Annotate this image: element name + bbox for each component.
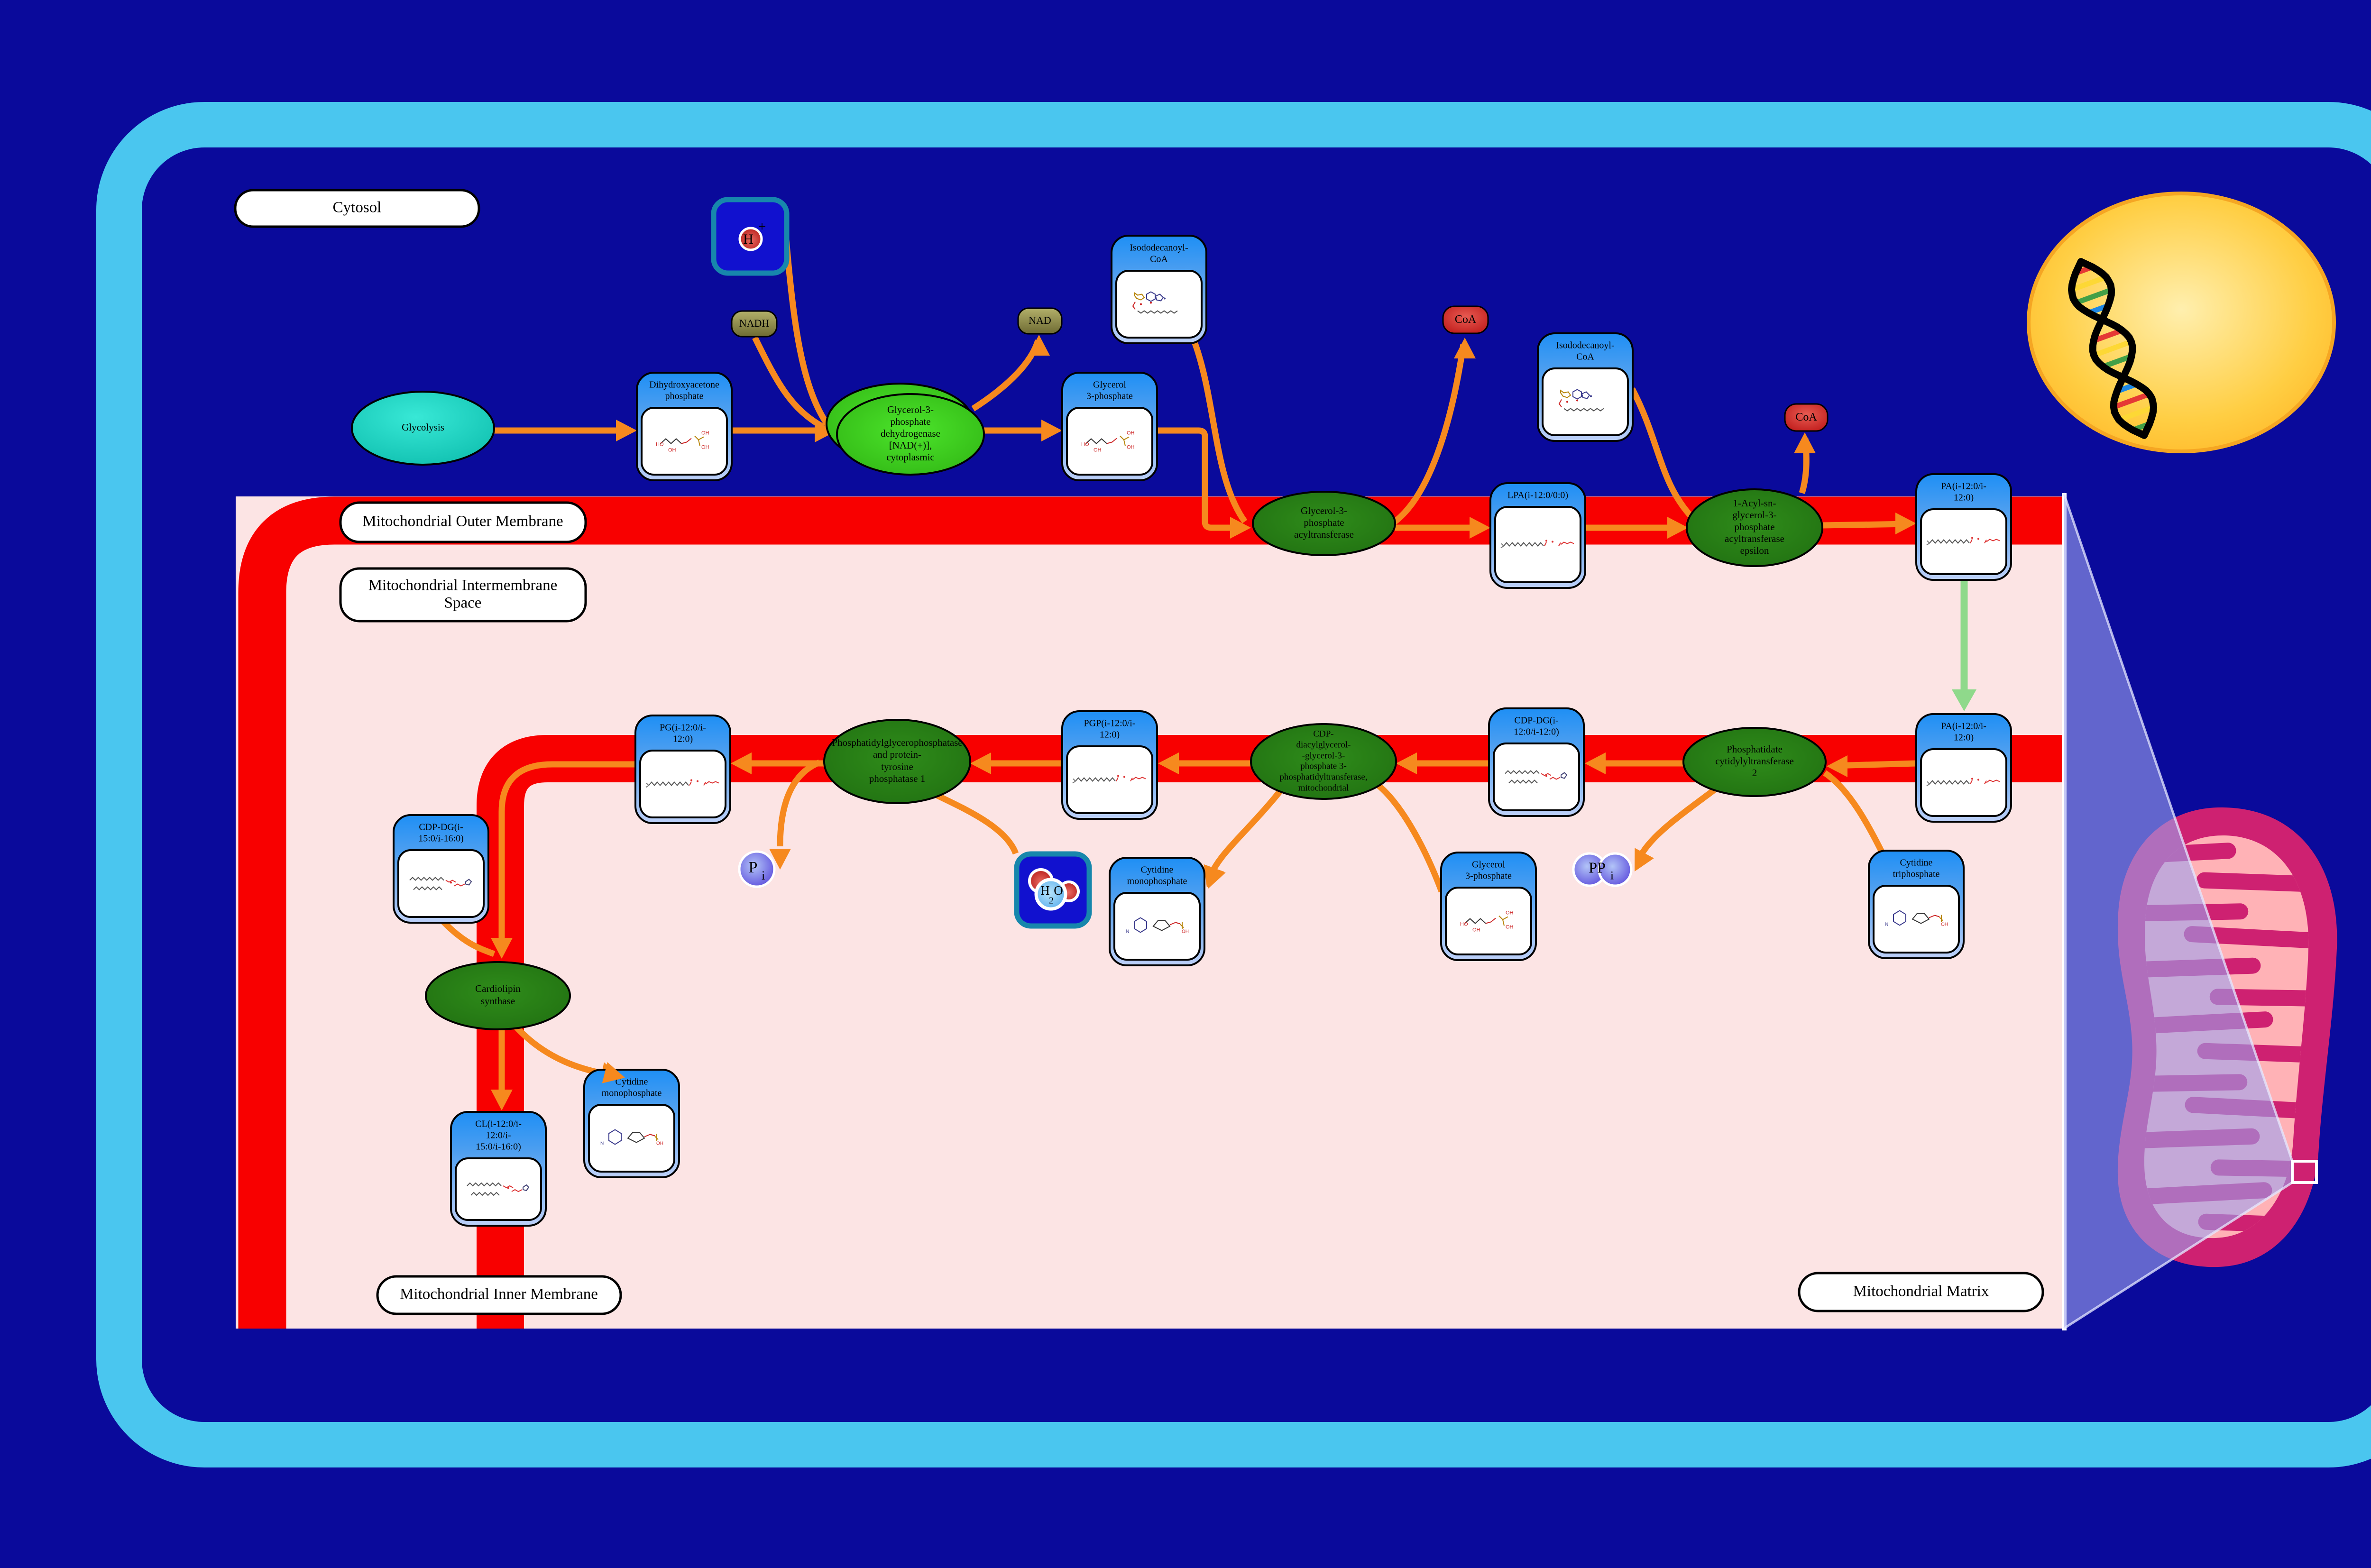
svg-text:Glycerol-3-: Glycerol-3- (1301, 505, 1347, 516)
svg-text:CoA: CoA (1455, 313, 1477, 326)
svg-text:Dihydroxyacetone: Dihydroxyacetone (649, 380, 719, 390)
svg-text:triphosphate: triphosphate (1893, 869, 1940, 880)
svg-text:mitochondrial: mitochondrial (1298, 783, 1349, 793)
svg-text:[NAD(+)],: [NAD(+)], (889, 440, 932, 451)
svg-text:Isododecanoyl-: Isododecanoyl- (1556, 340, 1614, 351)
svg-text:phosphate: phosphate (890, 416, 930, 427)
svg-text:CoA: CoA (1795, 411, 1817, 423)
svg-text:acyltransferase: acyltransferase (1725, 533, 1784, 544)
svg-text:dehydrogenase: dehydrogenase (881, 428, 940, 439)
svg-text:P: P (749, 859, 758, 876)
svg-text:CoA: CoA (1576, 352, 1594, 362)
svg-text:CDP-DG(i-: CDP-DG(i- (419, 822, 463, 833)
svg-text:2: 2 (1752, 767, 1757, 779)
svg-text:Mitochondrial Intermembrane: Mitochondrial Intermembrane (368, 577, 558, 594)
svg-text:i: i (762, 869, 765, 882)
svg-text:phosphatidyltransferase,: phosphatidyltransferase, (1279, 772, 1367, 782)
svg-text:PGP(i-12:0/i-: PGP(i-12:0/i- (1084, 718, 1136, 729)
svg-text:12:0): 12:0) (1100, 730, 1120, 740)
svg-text:15:0/i-16:0): 15:0/i-16:0) (476, 1142, 521, 1152)
svg-text:CDP-DG(i-: CDP-DG(i- (1514, 715, 1558, 726)
svg-text:2: 2 (1049, 896, 1054, 906)
svg-text:-glycerol-3-: -glycerol-3- (1302, 751, 1345, 761)
svg-text:cytoplasmic: cytoplasmic (886, 451, 934, 463)
svg-text:diacylglycerol-: diacylglycerol- (1296, 740, 1351, 750)
svg-text:Phosphatidylglycerophosphatase: Phosphatidylglycerophosphatase (832, 737, 962, 748)
svg-text:Glycerol: Glycerol (1472, 860, 1505, 870)
svg-text:phosphate: phosphate (1734, 521, 1774, 532)
svg-text:Cytidine: Cytidine (1141, 865, 1174, 875)
svg-text:acyltransferase: acyltransferase (1294, 529, 1354, 540)
svg-text:NADH: NADH (739, 317, 770, 329)
svg-text:Cardiolipin: Cardiolipin (475, 983, 521, 994)
svg-text:Glycerol-3-: Glycerol-3- (887, 404, 934, 415)
svg-text:PP: PP (1589, 859, 1606, 876)
svg-text:phosphate: phosphate (665, 391, 703, 402)
svg-text:Glycolysis: Glycolysis (402, 422, 444, 433)
svg-text:synthase: synthase (481, 995, 515, 1007)
svg-text:Isododecanoyl-: Isododecanoyl- (1130, 243, 1188, 253)
svg-text:tyrosine: tyrosine (881, 761, 913, 772)
svg-text:H: H (743, 231, 754, 247)
svg-text:CoA: CoA (1150, 254, 1168, 265)
svg-text:i: i (1610, 870, 1614, 882)
svg-text:12:0): 12:0) (1954, 493, 1974, 503)
svg-text:Space: Space (444, 595, 482, 612)
svg-text:15:0/i-16:0): 15:0/i-16:0) (418, 834, 464, 844)
svg-text:12:0): 12:0) (673, 734, 693, 744)
svg-text:O: O (1054, 883, 1063, 898)
svg-text:cytidylyltransferase: cytidylyltransferase (1715, 755, 1794, 767)
svg-text:PA(i-12:0/i-: PA(i-12:0/i- (1941, 721, 1986, 732)
svg-text:CDP-: CDP- (1313, 729, 1333, 739)
svg-text:glycerol-3-: glycerol-3- (1732, 509, 1776, 521)
svg-text:monophosphate: monophosphate (1127, 876, 1187, 887)
svg-text:Phosphatidate: Phosphatidate (1727, 743, 1783, 755)
svg-text:12:0/i-: 12:0/i- (486, 1130, 511, 1141)
svg-text:Mitochondrial Outer Membrane: Mitochondrial Outer Membrane (362, 513, 563, 530)
svg-text:Mitochondrial Matrix: Mitochondrial Matrix (1853, 1283, 1989, 1300)
svg-text:+: + (758, 219, 766, 234)
svg-text:12:0/i-12:0): 12:0/i-12:0) (1514, 727, 1559, 737)
svg-text:monophosphate: monophosphate (602, 1088, 662, 1099)
svg-text:Glycerol: Glycerol (1093, 380, 1126, 390)
svg-text:12:0): 12:0) (1954, 733, 1974, 743)
svg-text:phosphatase 1: phosphatase 1 (869, 773, 925, 784)
svg-text:LPA(i-12:0/0:0): LPA(i-12:0/0:0) (1507, 490, 1568, 501)
svg-text:and protein-: and protein- (873, 749, 921, 760)
svg-text:H: H (1040, 883, 1050, 898)
svg-text:phosphate: phosphate (1304, 517, 1344, 528)
svg-text:Cytidine: Cytidine (1900, 858, 1933, 868)
svg-text:CL(i-12:0/i-: CL(i-12:0/i- (475, 1119, 522, 1129)
svg-text:Cytosol: Cytosol (333, 199, 382, 216)
svg-text:1-Acyl-sn-: 1-Acyl-sn- (1733, 497, 1776, 509)
svg-text:Mitochondrial Inner Membrane: Mitochondrial Inner Membrane (400, 1286, 598, 1303)
svg-text:PA(i-12:0/i-: PA(i-12:0/i- (1941, 481, 1986, 492)
svg-text:PG(i-12:0/i-: PG(i-12:0/i- (660, 723, 706, 733)
svg-text:epsilon: epsilon (1740, 545, 1769, 556)
svg-text:phosphate 3-: phosphate 3- (1300, 761, 1347, 771)
svg-text:3-phosphate: 3-phosphate (1086, 391, 1133, 402)
svg-text:NAD: NAD (1029, 314, 1051, 326)
svg-text:3-phosphate: 3-phosphate (1465, 871, 1512, 881)
